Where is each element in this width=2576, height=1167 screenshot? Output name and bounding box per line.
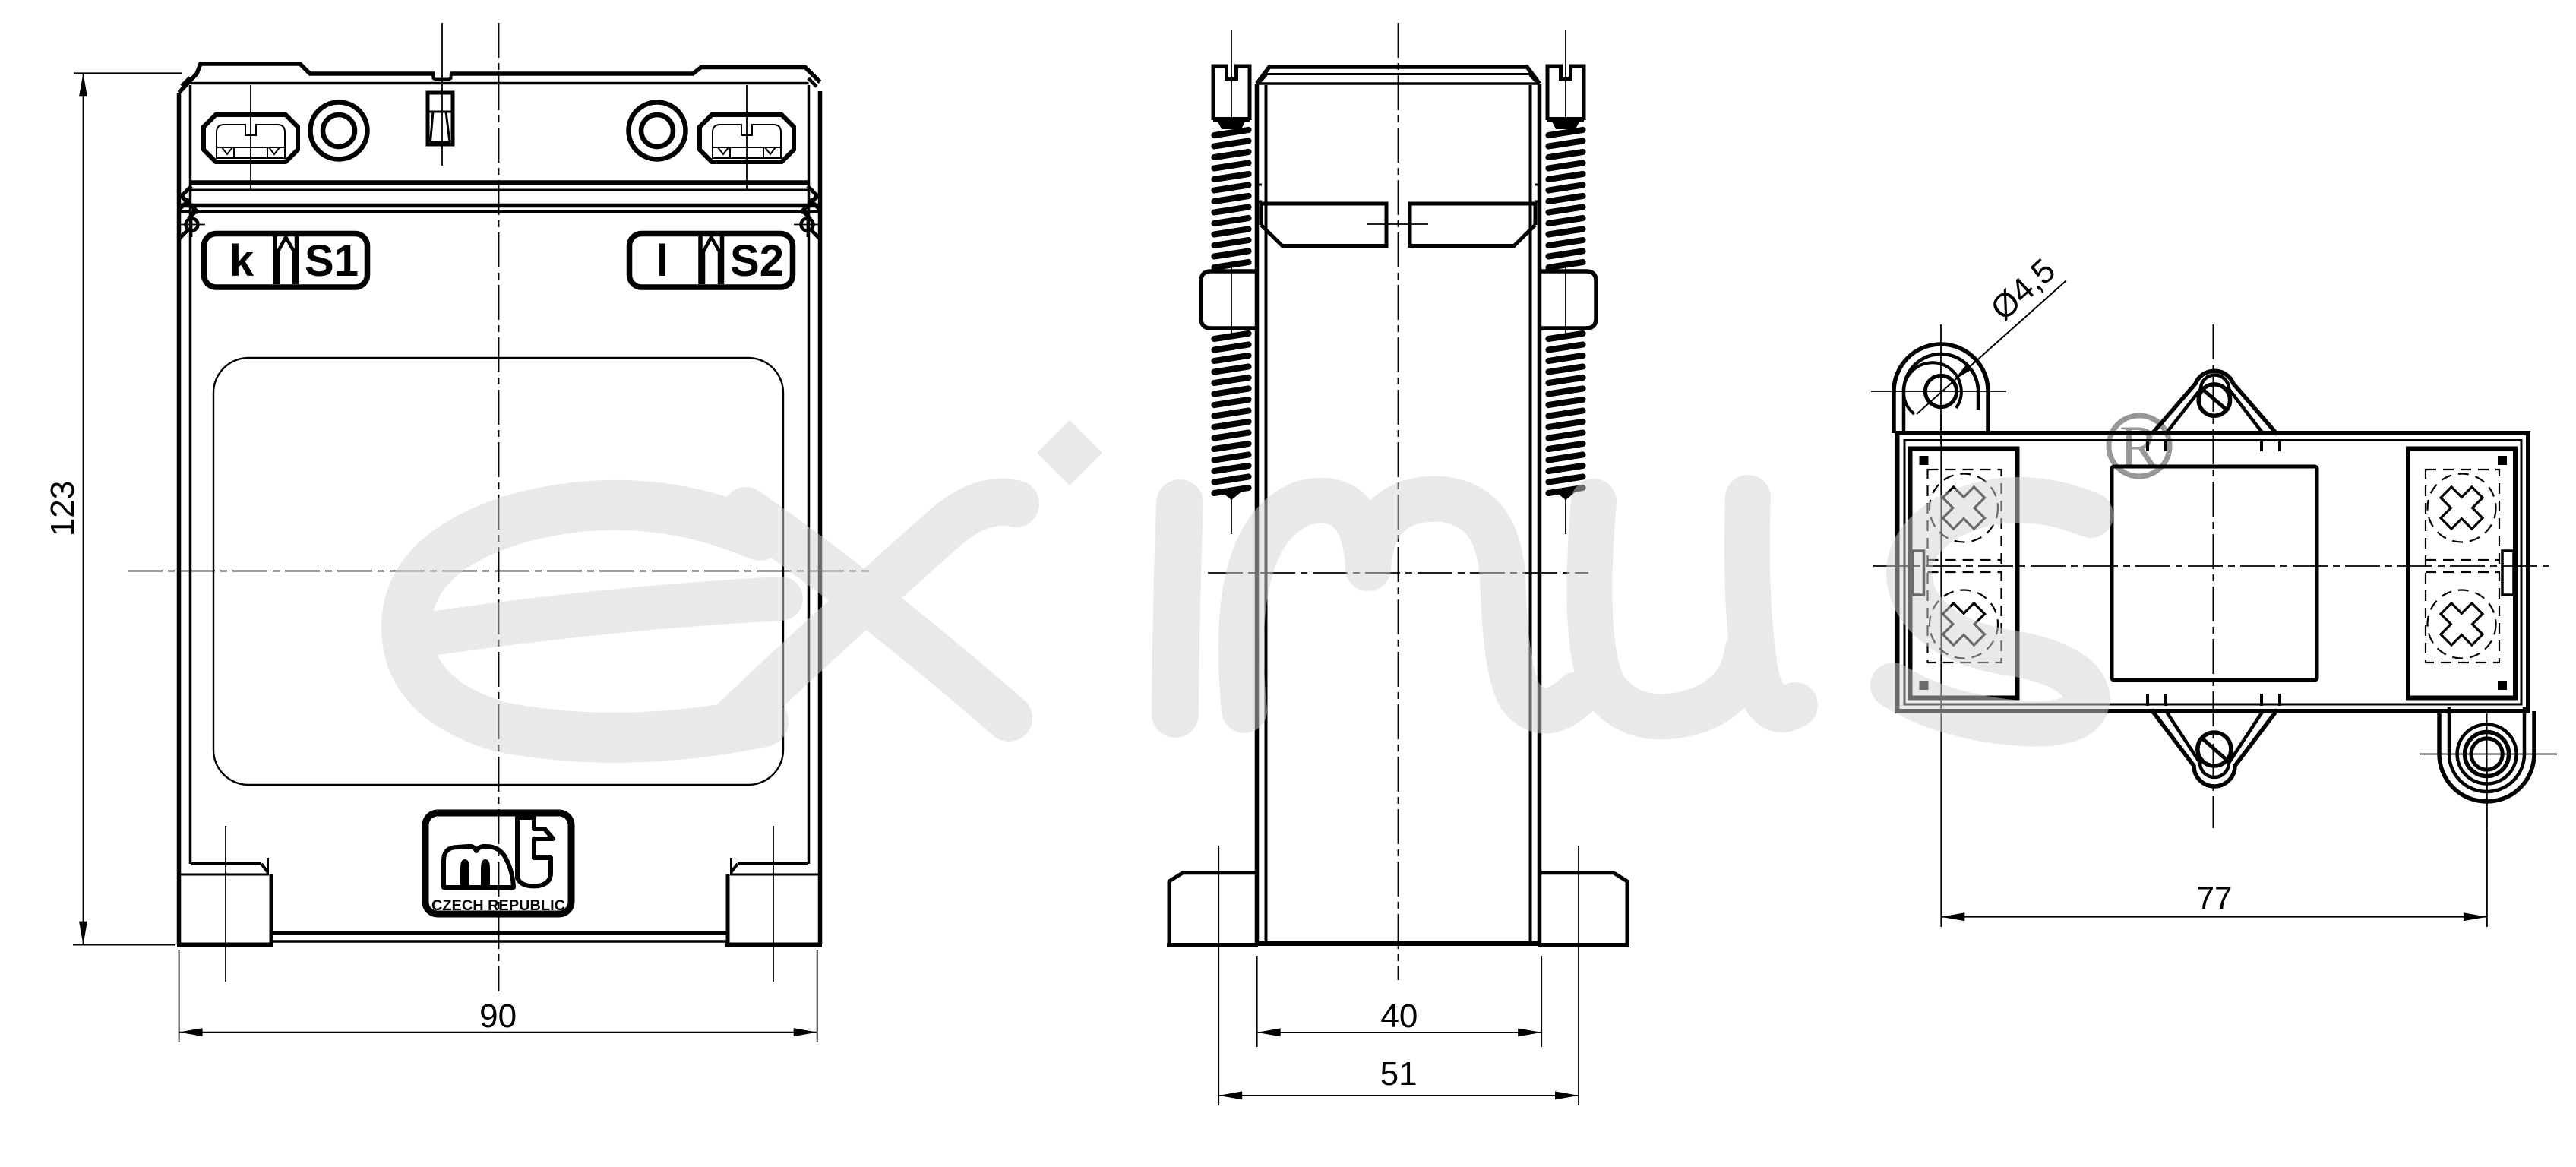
svg-text:S1: S1: [305, 236, 359, 286]
svg-text:40: 40: [1380, 998, 1418, 1035]
svg-text:90: 90: [479, 998, 517, 1035]
svg-text:S2: S2: [730, 236, 784, 286]
svg-text:123: 123: [44, 481, 81, 536]
svg-text:l: l: [656, 236, 668, 286]
svg-text:R: R: [2119, 413, 2159, 479]
svg-text:k: k: [229, 236, 254, 286]
svg-text:77: 77: [2197, 880, 2233, 916]
svg-text:51: 51: [1380, 1055, 1418, 1093]
